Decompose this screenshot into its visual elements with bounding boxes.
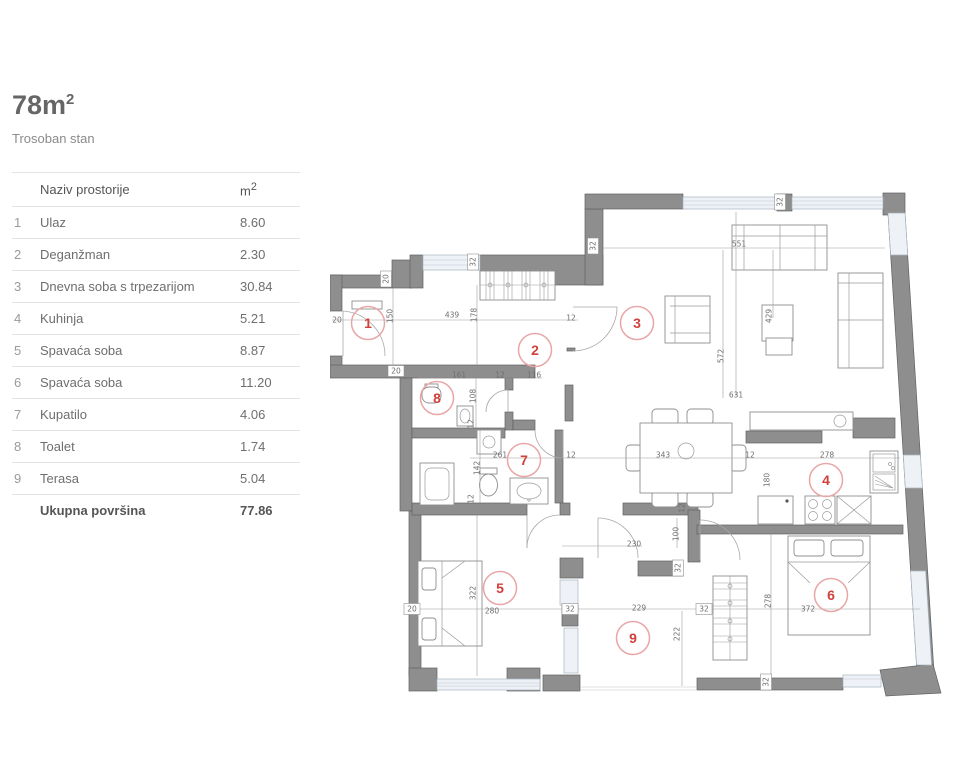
- dimension-label: 222: [673, 627, 682, 642]
- total-row: Ukupna površina 77.86: [12, 495, 300, 527]
- page-title: 78m2: [12, 92, 300, 119]
- room-number-2: 2: [531, 342, 539, 358]
- dimension-label: 20: [382, 274, 391, 284]
- dimension-label: 12: [467, 419, 476, 429]
- toilet-7: [480, 468, 497, 474]
- dimension-label: 572: [717, 349, 726, 364]
- kitchen-counter: [750, 412, 853, 430]
- room-number-7: 7: [520, 452, 528, 468]
- bed-6: [788, 536, 870, 635]
- header-num-col: [12, 173, 38, 207]
- dimension-label: 32: [469, 257, 478, 267]
- total-label: Ukupna površina: [38, 495, 238, 527]
- floor-plan: 2015043917812551429572631161121161082611…: [330, 168, 960, 713]
- dimension-label: 100: [672, 527, 681, 542]
- dimension-label: 280: [485, 607, 500, 616]
- table-row: 3Dnevna soba s trpezarijom30.84: [12, 271, 300, 303]
- room-number-1: 1: [364, 315, 372, 331]
- dimension-label: 12: [467, 494, 476, 504]
- table-row: 6Spavaća soba11.20: [12, 367, 300, 399]
- room-number-8: 8: [433, 390, 441, 406]
- dimension-label: 20: [391, 367, 401, 376]
- dimension-label: 343: [656, 451, 671, 460]
- armchair: [665, 296, 710, 343]
- dimension-label: 32: [699, 605, 709, 614]
- dimension-label: 12: [678, 503, 687, 513]
- room-number-6: 6: [827, 587, 835, 603]
- room-number-5: 5: [496, 580, 504, 596]
- apartment-type-subtitle: Trosoban stan: [12, 131, 300, 146]
- dimension-label: 32: [565, 605, 575, 614]
- table-row: 9Terasa5.04: [12, 463, 300, 495]
- dimension-label: 178: [470, 308, 479, 323]
- dimension-label: 551: [732, 240, 747, 249]
- dimension-label: 20: [407, 605, 417, 614]
- floor-plan-svg: 2015043917812551429572631161121161082611…: [330, 168, 960, 713]
- dimension-label: 278: [820, 451, 835, 460]
- sofa: [732, 225, 827, 270]
- dimension-label: 229: [632, 604, 647, 613]
- room-number-9: 9: [629, 630, 637, 646]
- table-row: 4Kuhinja5.21: [12, 303, 300, 335]
- dimension-label: 150: [386, 309, 395, 324]
- table-header-row: Naziv prostorije m2: [12, 173, 300, 207]
- table-row: 7Kupatilo4.06: [12, 399, 300, 431]
- bathroom-sink: [510, 478, 548, 504]
- stove: [805, 496, 835, 524]
- dimension-label: 12: [566, 314, 576, 323]
- bathroom-fixtures: [420, 430, 548, 505]
- dimension-label: 20: [332, 316, 342, 325]
- dimension-label: 108: [469, 389, 478, 404]
- dimension-label: 32: [674, 563, 683, 573]
- info-panel: 78m2 Trosoban stan Naziv prostorije m2 1…: [12, 92, 300, 526]
- dimension-label: 32: [762, 677, 771, 687]
- dimension-label: 12: [495, 371, 505, 380]
- dimension-label: 116: [527, 371, 542, 380]
- dimension-label: 631: [729, 391, 744, 400]
- title-superscript: 2: [66, 91, 74, 108]
- table-row: 8Toalet1.74: [12, 431, 300, 463]
- dimension-label: 180: [763, 473, 772, 488]
- wardrobe-6: [713, 576, 747, 660]
- dimension-label: 278: [764, 594, 773, 609]
- dimension-label: 142: [473, 461, 482, 476]
- dimension-label: 261: [493, 451, 508, 460]
- hallway-wardrobe: [480, 271, 555, 300]
- table-row: 5Spavaća soba8.87: [12, 335, 300, 367]
- dimension-label: 32: [589, 241, 598, 251]
- dimension-label: 161: [452, 371, 467, 380]
- table-row: 2Deganžman2.30: [12, 239, 300, 271]
- total-value: 77.86: [238, 495, 300, 527]
- dimension-label: 12: [566, 451, 576, 460]
- room-number-4: 4: [822, 472, 830, 488]
- dimension-label: 372: [801, 605, 816, 614]
- dimension-label: 12: [745, 451, 755, 460]
- dimension-label: 439: [445, 311, 460, 320]
- dimension-label: 429: [765, 309, 774, 324]
- dimension-label: 230: [627, 540, 642, 549]
- entry-shelf: [352, 301, 382, 309]
- table-row: 1Ulaz8.60: [12, 207, 300, 239]
- dimension-label: 32: [776, 197, 785, 207]
- toilet-8: [422, 384, 473, 426]
- room-number-3: 3: [633, 315, 641, 331]
- sofa-2: [838, 273, 883, 368]
- bed-5: [418, 561, 482, 646]
- dimension-label: 322: [469, 586, 478, 601]
- room-area-table: Naziv prostorije m2 1Ulaz8.602Deganžman2…: [12, 172, 300, 526]
- header-unit: m2: [238, 173, 300, 207]
- header-room-name: Naziv prostorije: [38, 173, 238, 207]
